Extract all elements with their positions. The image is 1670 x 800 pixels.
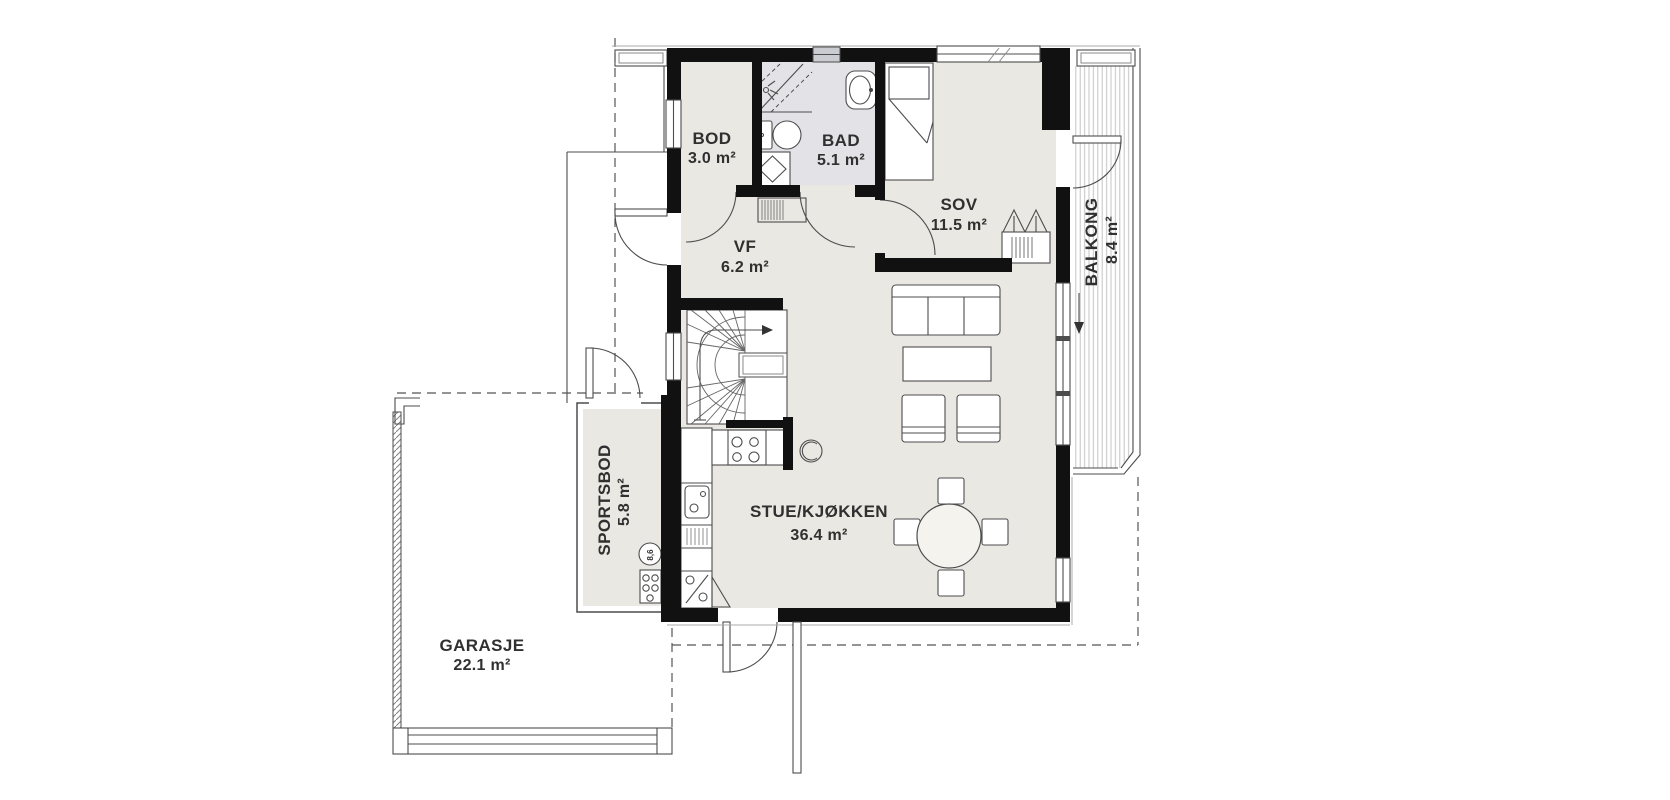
window: [813, 47, 840, 62]
room-area-sov: 11.5 m²: [931, 217, 987, 234]
room-label-sov: SOV: [940, 195, 977, 214]
window: [666, 333, 681, 380]
water-heater-label: 8,6: [646, 549, 655, 561]
room-label-garasje: GARASJE: [440, 636, 525, 655]
bathroom-sink-icon: [846, 71, 876, 109]
armchair-icon: [902, 395, 945, 442]
entry-screen-wall: [793, 622, 801, 773]
sportsbod-shelf-unit: [640, 570, 661, 603]
room-label-vf: VF: [734, 237, 757, 256]
coffee-table-icon: [903, 347, 991, 381]
toilet-icon: [757, 121, 801, 149]
bed-icon: [885, 63, 933, 180]
room-area-bod: 3.0 m²: [688, 150, 736, 167]
room-area-vf: 6.2 m²: [721, 259, 769, 276]
window: [1056, 283, 1070, 445]
staircase: [687, 310, 787, 424]
room-label-balkong: BALKONG: [1082, 198, 1101, 287]
room-area-garasje: 22.1 m²: [453, 657, 510, 674]
sportsbod-door-leaf: [586, 348, 593, 398]
floor-plan-canvas: 8,6: [0, 0, 1670, 800]
window: [666, 100, 681, 148]
balcony-top-window: [1077, 50, 1135, 66]
sofa-icon: [892, 285, 1000, 335]
armchair-icon: [957, 395, 1000, 442]
room-area-bad: 5.1 m²: [817, 152, 865, 169]
garage-door: [393, 728, 672, 754]
room-area-stue: 36.4 m²: [790, 527, 847, 544]
floor-plan-svg: 8,6: [0, 0, 1670, 800]
room-area-sportsbod: 5.8 m²: [616, 478, 633, 526]
garage-left-wall: [393, 412, 401, 728]
room-area-balkong: 8.4 m²: [1104, 216, 1121, 264]
room-label-bod: BOD: [693, 129, 732, 148]
window: [1056, 558, 1070, 602]
front-door: [615, 209, 667, 265]
porch-window-box: [615, 50, 667, 66]
stair-landing: [739, 353, 787, 377]
window: [937, 46, 1040, 62]
kitchen-counter-top: [712, 430, 790, 465]
room-label-stue: STUE/KJØKKEN: [750, 502, 888, 521]
room-label-sportsbod: SPORTSBOD: [595, 444, 614, 555]
terrace-door: [723, 622, 777, 672]
room-label-bad: BAD: [822, 131, 860, 150]
